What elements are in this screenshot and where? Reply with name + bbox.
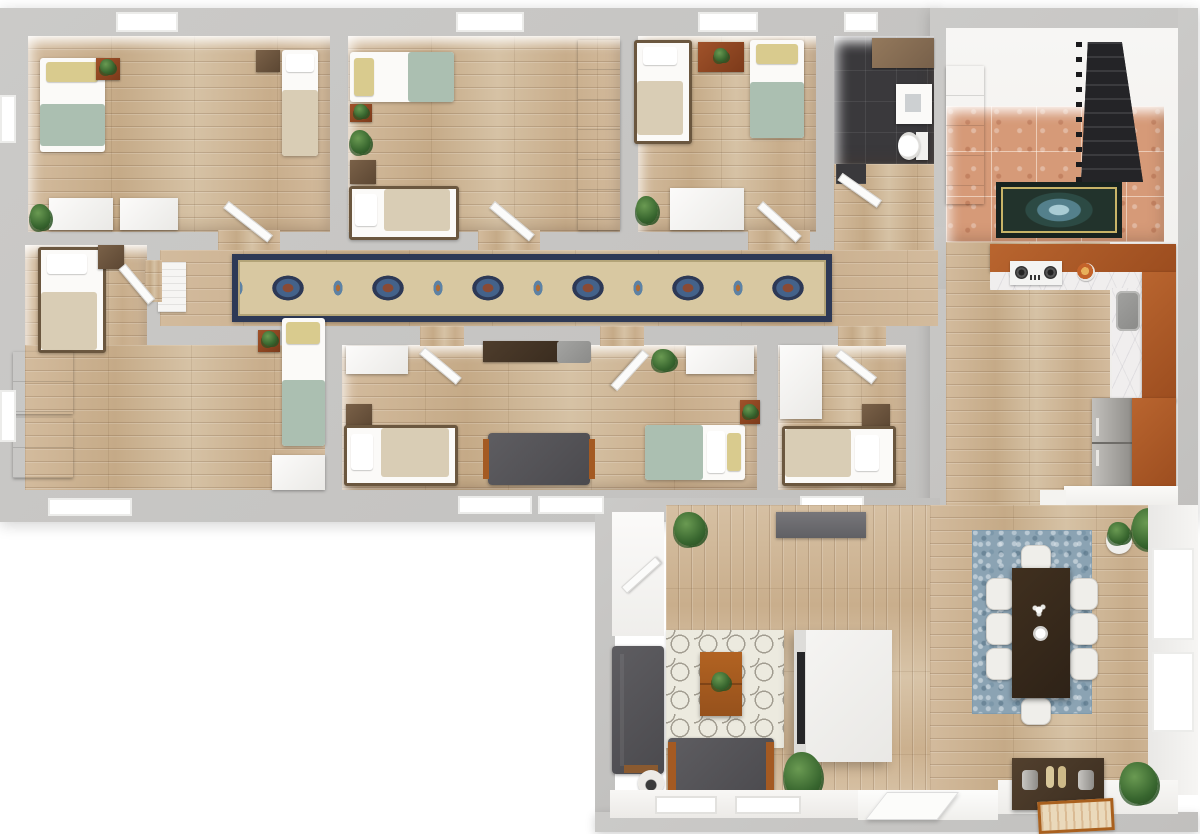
sofa-cushion-line bbox=[620, 654, 624, 766]
table-centerpiece-plant bbox=[1029, 600, 1049, 620]
console-vase-left bbox=[1022, 770, 1038, 790]
bedroom5-plant bbox=[652, 349, 676, 371]
gas-cooktop bbox=[1010, 261, 1062, 285]
window-left-1 bbox=[0, 95, 16, 143]
console-vase-right bbox=[1078, 770, 1094, 790]
dining-chair-left-1 bbox=[986, 578, 1014, 610]
living-sofa-vertical bbox=[612, 646, 664, 774]
bedroom6-bed-beige bbox=[782, 426, 896, 486]
stair-railing bbox=[1076, 42, 1082, 184]
bedroom2-wardrobe bbox=[578, 40, 620, 230]
loveseat-arm-left bbox=[668, 742, 676, 791]
window-bottom-2 bbox=[458, 496, 532, 514]
bedroom3-plant bbox=[636, 196, 658, 224]
media-console-wall bbox=[776, 512, 866, 538]
burner-left bbox=[1015, 266, 1028, 279]
sofa-arm-right bbox=[589, 439, 595, 479]
picture-frame bbox=[1037, 798, 1115, 834]
bedroom1-stand-plant bbox=[100, 59, 115, 74]
bedroom5-desk bbox=[483, 341, 559, 362]
floor-plan bbox=[0, 0, 1200, 834]
dining-window-2 bbox=[1152, 652, 1194, 732]
bedroom6-door-gap bbox=[838, 326, 886, 346]
window-left-2 bbox=[0, 390, 16, 442]
entry-cabinet bbox=[946, 66, 984, 204]
bathroom-sink bbox=[896, 84, 932, 124]
cooktop-grill bbox=[1030, 275, 1042, 280]
dining-plant-1 bbox=[1108, 522, 1130, 544]
bedroom6-closet bbox=[780, 345, 822, 419]
table-bowl bbox=[1033, 626, 1048, 641]
console-bottle-2 bbox=[1058, 766, 1066, 788]
dining-chair-right-3 bbox=[1070, 648, 1098, 680]
hallway-radiator bbox=[158, 262, 186, 312]
window-bottom-3 bbox=[538, 496, 604, 514]
bedroom3-dresser-plant bbox=[714, 48, 728, 62]
bedroom3-bed-sage bbox=[750, 40, 804, 138]
bedroom5-stand-plant bbox=[743, 404, 757, 418]
bedroom4-nightstand bbox=[98, 245, 124, 269]
bedroom5-closet-left bbox=[346, 346, 408, 374]
bedroom2-nightstand bbox=[350, 160, 376, 184]
counter-right-run bbox=[1142, 272, 1176, 402]
shrub bbox=[1120, 762, 1158, 804]
bedroom2-plant bbox=[350, 130, 371, 154]
bedroom5-sofa bbox=[488, 433, 590, 485]
sofa-arm-left bbox=[483, 439, 489, 479]
tv-screen bbox=[797, 652, 805, 744]
fridge-handle-top bbox=[1096, 418, 1099, 436]
bedroom1-nightstand bbox=[256, 50, 280, 72]
dining-chair-left-3 bbox=[986, 648, 1014, 680]
refrigerator bbox=[1092, 398, 1132, 486]
fridge-handle-bottom bbox=[1096, 450, 1099, 466]
dining-chair-left-2 bbox=[986, 613, 1014, 645]
fridge-divider bbox=[1092, 442, 1132, 444]
bedroom5-desk-chair bbox=[557, 341, 591, 363]
sink-basin bbox=[905, 94, 921, 112]
window-top-bath bbox=[844, 12, 878, 32]
dining-table bbox=[1012, 568, 1070, 698]
bedroom5-door-gap-b bbox=[600, 326, 644, 346]
bedroom5-bed-beige bbox=[344, 425, 458, 486]
food-plate bbox=[1077, 263, 1095, 281]
window-top-2 bbox=[456, 12, 524, 32]
tv-cabinet bbox=[794, 630, 892, 762]
bedroom3-dresser-white bbox=[670, 188, 744, 230]
bedroom4-dresser-a bbox=[13, 352, 73, 414]
loveseat-arm-right bbox=[766, 742, 774, 791]
kitchen-right-wall bbox=[1178, 8, 1198, 514]
bedroom4-dresser-b bbox=[13, 418, 73, 478]
bedroom2-stand-plant bbox=[354, 104, 368, 118]
bottom-sill-left bbox=[610, 790, 858, 818]
bedroom4-stand-plant bbox=[262, 331, 277, 346]
window-top-1 bbox=[116, 12, 178, 32]
toilet-bowl bbox=[898, 132, 920, 160]
living-loveseat bbox=[668, 738, 774, 795]
bedroom3-bed-beige bbox=[634, 40, 692, 144]
bedroom5-door-gap-a bbox=[420, 326, 464, 346]
bedroom1-plant bbox=[30, 204, 51, 230]
sill-window-1 bbox=[655, 796, 717, 814]
kitchen-sink bbox=[1116, 291, 1140, 331]
bedroom4-bed-sage bbox=[282, 318, 325, 446]
bedroom6-nightstand bbox=[862, 404, 890, 428]
bedroom1-dresser-b bbox=[120, 198, 178, 230]
dining-chair-right-2 bbox=[1070, 613, 1098, 645]
living-plant-top bbox=[674, 512, 706, 546]
window-bottom-1 bbox=[48, 498, 132, 516]
hallway-runner-rug bbox=[232, 254, 832, 322]
cabinet-panel-lower bbox=[1132, 398, 1176, 490]
bedroom2-bed-beige bbox=[349, 186, 459, 240]
bedroom5-closet-right bbox=[686, 346, 754, 374]
bedroom3-door-gap bbox=[748, 230, 810, 252]
bedroom5-bed-sage bbox=[645, 425, 745, 480]
dining-chair-right-1 bbox=[1070, 578, 1098, 610]
burner-right bbox=[1044, 266, 1057, 279]
bathroom-vanity bbox=[872, 38, 934, 68]
sill-window-2 bbox=[735, 796, 801, 814]
bedroom4-bed-beige bbox=[38, 247, 106, 353]
entry-accent-rug bbox=[996, 182, 1122, 238]
window-top-3 bbox=[698, 12, 758, 32]
dining-window-1 bbox=[1152, 548, 1194, 640]
bathroom-toilet bbox=[898, 128, 930, 164]
coffee-table-plant bbox=[712, 672, 730, 690]
bedroom1-bed-beige bbox=[282, 50, 318, 156]
dining-chair-bottom bbox=[1021, 698, 1051, 725]
bedroom1-dresser-a bbox=[49, 198, 113, 230]
bedroom4-dresser-c bbox=[272, 455, 325, 490]
bedroom2-bed-sage bbox=[350, 52, 454, 102]
console-bottle-1 bbox=[1046, 766, 1054, 788]
